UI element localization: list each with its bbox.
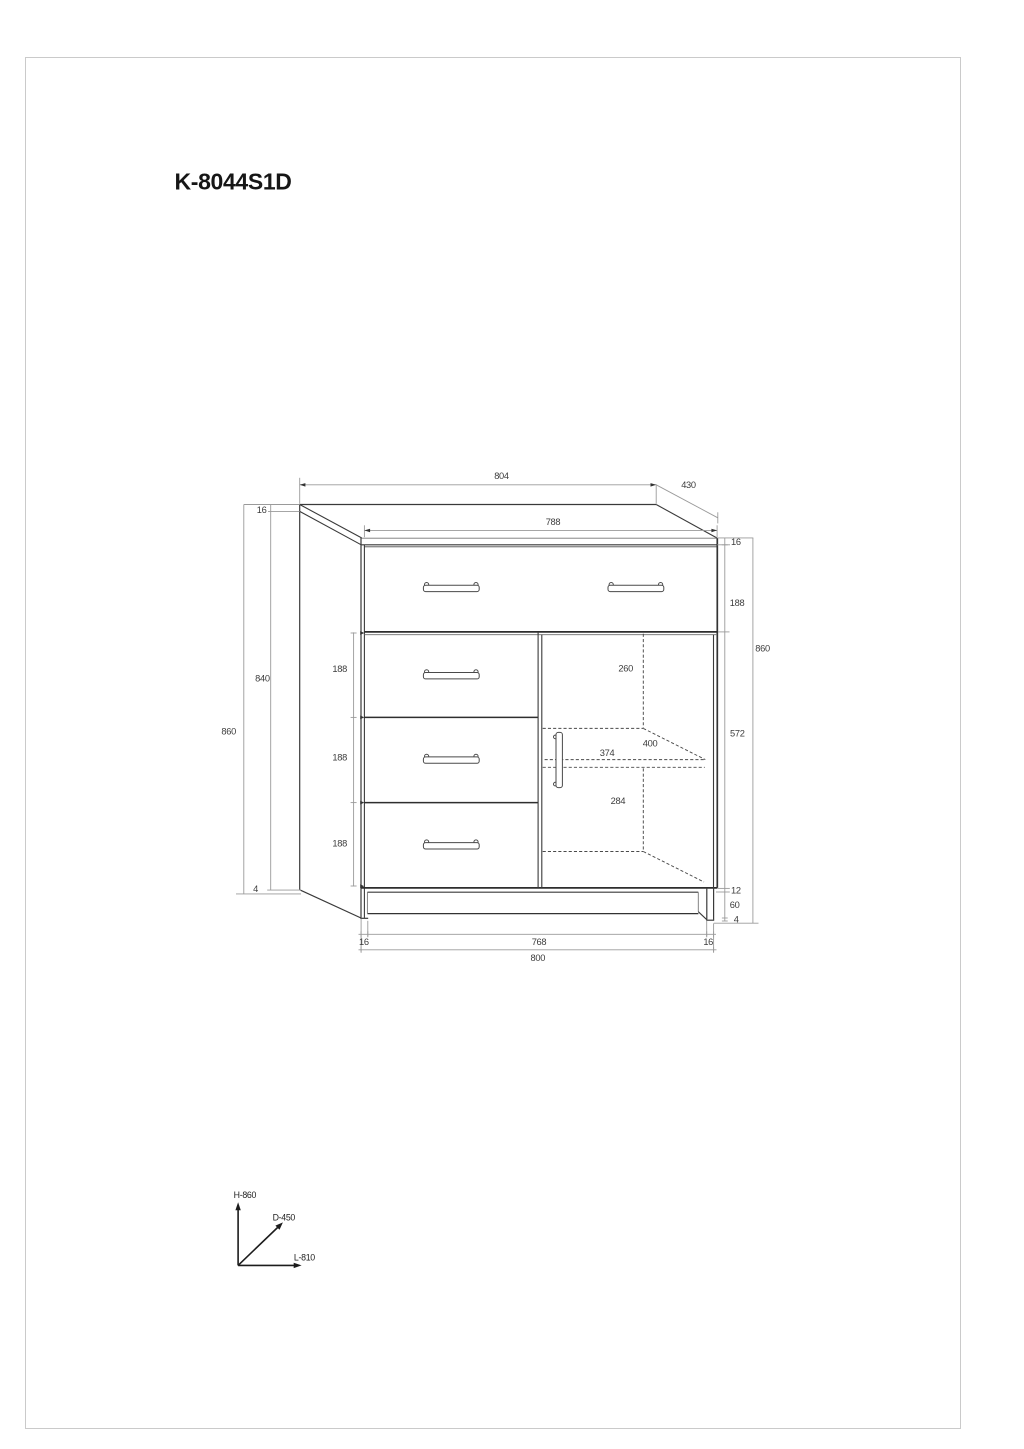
svg-text:788: 788	[546, 517, 561, 527]
svg-text:16: 16	[359, 937, 369, 947]
svg-text:60: 60	[730, 900, 740, 910]
svg-text:430: 430	[681, 480, 696, 490]
svg-text:768: 768	[532, 937, 547, 947]
svg-text:284: 284	[611, 796, 626, 806]
svg-text:4: 4	[734, 915, 739, 925]
svg-text:L-810: L-810	[294, 1253, 315, 1263]
svg-text:16: 16	[257, 505, 267, 515]
svg-text:12: 12	[731, 886, 741, 896]
svg-text:H-860: H-860	[234, 1190, 257, 1200]
svg-text:860: 860	[221, 727, 236, 737]
svg-text:188: 188	[332, 753, 347, 763]
svg-text:D-450: D-450	[273, 1212, 296, 1222]
svg-text:188: 188	[730, 598, 745, 608]
svg-text:K-8044S1D: K-8044S1D	[175, 169, 292, 195]
svg-text:188: 188	[332, 664, 347, 674]
svg-text:400: 400	[643, 738, 658, 748]
svg-text:572: 572	[730, 728, 745, 738]
svg-text:16: 16	[731, 537, 741, 547]
svg-text:374: 374	[600, 748, 615, 758]
svg-text:804: 804	[494, 471, 509, 481]
svg-text:188: 188	[332, 839, 347, 849]
svg-text:260: 260	[618, 663, 633, 673]
svg-text:4: 4	[253, 884, 258, 894]
svg-text:800: 800	[530, 953, 545, 963]
svg-text:16: 16	[703, 937, 713, 947]
svg-text:840: 840	[255, 673, 270, 683]
svg-text:860: 860	[755, 644, 770, 654]
